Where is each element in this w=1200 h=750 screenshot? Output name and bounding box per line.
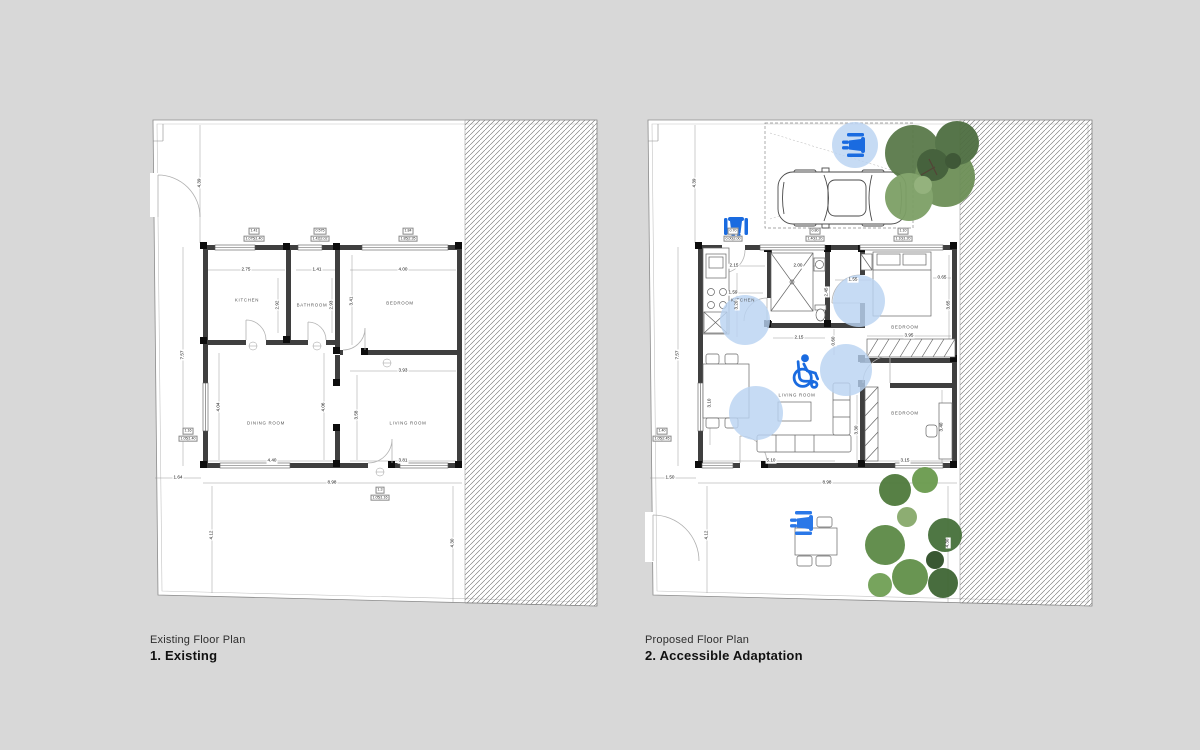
drawing-sheet: { "colors":{"background":"#d8d8d8","pape… — [0, 0, 1200, 750]
plan-title: Proposed Floor Plan — [645, 634, 803, 646]
neighbor-hatch — [960, 120, 1092, 606]
plan-title: Existing Floor Plan — [150, 634, 246, 646]
proposed-floor-plan: KITCHENBEDROOMLIVING ROOMBEDROOM4.397.57… — [645, 115, 1095, 612]
closet — [865, 387, 878, 461]
existing-floor-plan: KITCHENBATHROOMBEDROOMDINING ROOMLIVING … — [150, 115, 600, 612]
existing-plan-caption: Existing Floor Plan 1. Existing — [150, 634, 246, 663]
neighbor-hatch — [465, 120, 597, 606]
proposed-floorplan-drawing — [645, 115, 1095, 612]
existing-floorplan-drawing — [150, 115, 600, 612]
wardrobe — [867, 339, 955, 357]
proposed-plan-caption: Proposed Floor Plan 2. Accessible Adapta… — [645, 634, 803, 663]
plan-subtitle: 2. Accessible Adaptation — [645, 648, 803, 663]
plan-subtitle: 1. Existing — [150, 648, 246, 663]
